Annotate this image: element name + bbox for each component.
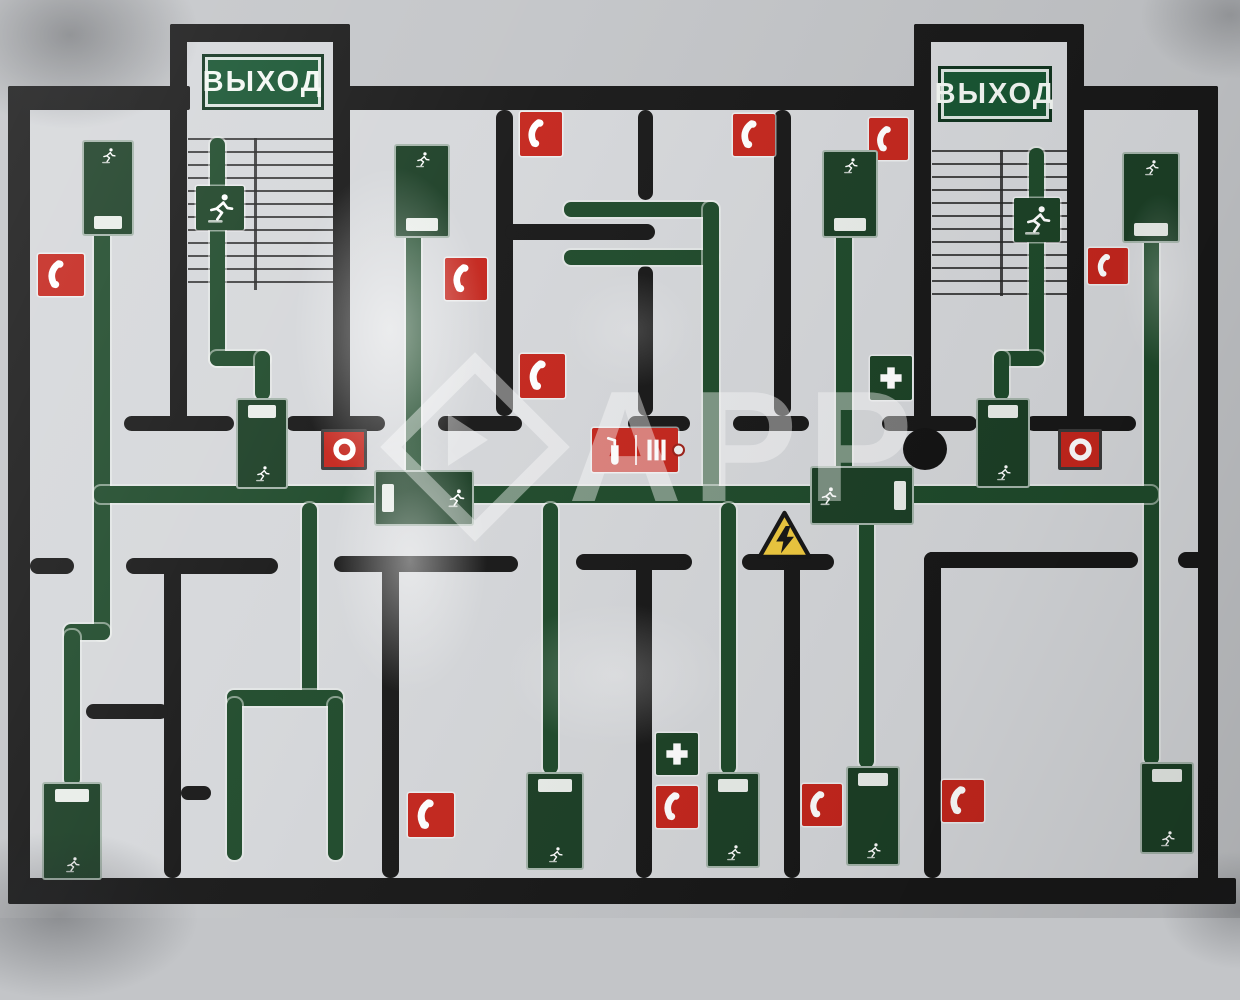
phone-icon xyxy=(658,788,696,826)
running-man-icon xyxy=(865,842,882,859)
route-indicator-sign xyxy=(822,150,878,238)
fire-phone-sign xyxy=(445,258,487,300)
wall-segment xyxy=(638,110,653,200)
direction-sign xyxy=(374,470,474,526)
running-man-icon xyxy=(64,856,81,873)
hose-reel-icon xyxy=(1066,435,1095,464)
wall-segment xyxy=(924,552,941,878)
wall-segment xyxy=(181,786,211,800)
sign-label-strip xyxy=(1152,769,1182,782)
sign-label-strip xyxy=(406,218,438,231)
evacuation-route-segment xyxy=(64,630,80,786)
wall-segment xyxy=(784,554,800,878)
sign-divider xyxy=(635,435,637,465)
sign-label-strip xyxy=(538,779,571,792)
evacuation-route-segment xyxy=(703,202,719,491)
evacuation-route-segment xyxy=(94,216,110,640)
phone-icon xyxy=(42,256,80,294)
route-indicator-sign xyxy=(236,398,288,489)
sign-label-strip xyxy=(894,481,906,510)
wall-segment xyxy=(8,878,1236,904)
evacuation-route-segment xyxy=(210,138,225,366)
sign-label-strip xyxy=(55,789,90,802)
phone-icon xyxy=(1093,251,1124,282)
running-man-icon xyxy=(547,846,564,863)
exit-sign: ВЫХОД xyxy=(202,54,324,110)
electrical-hazard-icon xyxy=(756,507,813,564)
wall-segment xyxy=(1067,24,1084,422)
first-aid-cross-icon xyxy=(662,739,692,769)
evacuation-route-segment xyxy=(302,503,317,701)
route-indicator-sign xyxy=(526,772,584,870)
route-indicator-sign xyxy=(976,398,1030,488)
sign-label-strip xyxy=(94,216,123,229)
sign-label-strip xyxy=(382,484,394,511)
wall-segment xyxy=(124,416,234,431)
running-man-icon xyxy=(1143,159,1160,176)
running-man-icon xyxy=(818,486,838,506)
wall-segment xyxy=(86,704,168,719)
column-marker xyxy=(903,428,947,470)
running-man-sign xyxy=(1014,198,1060,242)
phone-icon xyxy=(411,795,451,835)
hose-reel-icon xyxy=(330,435,359,464)
wall-segment xyxy=(8,86,30,902)
phone-icon xyxy=(447,260,485,298)
phone-icon xyxy=(522,115,560,153)
running-man-icon xyxy=(100,147,117,164)
sign-label-strip xyxy=(718,779,748,792)
running-man-icon xyxy=(1021,204,1053,236)
exit-sign-label: ВЫХОД xyxy=(935,78,1056,111)
evacuation-plan-photo: ВЫХОДВЫХОД АРР xyxy=(0,0,1240,918)
extinguisher-hose-cabinet-sign xyxy=(592,428,678,472)
wall-segment xyxy=(170,24,187,422)
running-man-icon xyxy=(725,844,742,861)
phone-icon xyxy=(522,356,562,396)
route-indicator-sign xyxy=(394,144,450,238)
direction-sign xyxy=(810,466,914,525)
route-indicator-sign xyxy=(1140,762,1194,854)
wall-segment xyxy=(733,416,809,431)
evacuation-route-segment xyxy=(255,351,270,400)
running-man-icon xyxy=(254,465,271,482)
evacuation-route-segment xyxy=(994,351,1009,400)
evacuation-route-segment xyxy=(564,202,718,217)
fire-extinguisher-icon xyxy=(598,433,631,467)
first-aid-sign xyxy=(656,733,698,775)
route-indicator-sign xyxy=(846,766,900,866)
evacuation-route-segment xyxy=(406,220,421,491)
fire-phone-sign xyxy=(1088,248,1128,284)
wall-segment xyxy=(496,110,513,416)
sign-label-strip xyxy=(834,218,866,231)
wall-segment xyxy=(576,554,692,570)
wall-segment xyxy=(636,554,652,878)
sign-label-strip xyxy=(248,405,277,418)
fire-phone-sign xyxy=(942,780,984,822)
wall-segment xyxy=(638,266,653,416)
wall-segment xyxy=(924,552,1138,568)
first-aid-sign xyxy=(870,356,912,400)
route-indicator-sign xyxy=(82,140,134,236)
sign-label-strip xyxy=(1134,223,1167,236)
fire-phone-sign xyxy=(520,354,565,398)
wall-segment xyxy=(1178,552,1218,568)
evacuation-route-segment xyxy=(328,698,343,860)
evacuation-route-segment xyxy=(543,503,558,774)
wall-segment xyxy=(505,224,655,240)
fire-phone-sign xyxy=(802,784,842,826)
sign-label-strip xyxy=(858,773,888,786)
first-aid-cross-icon xyxy=(876,363,906,393)
wall-segment xyxy=(126,558,278,574)
fire-phone-sign xyxy=(38,254,84,296)
fire-phone-sign xyxy=(733,114,775,156)
sign-label-strip xyxy=(988,405,1018,418)
wall-segment xyxy=(1070,86,1218,110)
evacuation-route-segment xyxy=(859,503,874,768)
route-indicator-sign xyxy=(42,782,102,880)
wall-segment xyxy=(164,558,181,878)
running-man-icon xyxy=(446,488,466,508)
stairs-divider xyxy=(1000,150,1003,296)
evacuation-route-segment xyxy=(721,503,736,774)
running-man-icon xyxy=(204,192,236,224)
phone-icon xyxy=(735,116,773,154)
wall-segment xyxy=(170,24,350,42)
running-man-icon xyxy=(995,464,1012,481)
running-man-icon xyxy=(842,157,859,174)
wall-segment xyxy=(1198,86,1218,904)
exit-sign-label: ВЫХОД xyxy=(203,66,324,99)
stairs-divider xyxy=(254,138,257,290)
wall-segment xyxy=(334,86,926,110)
running-man-sign xyxy=(196,186,244,230)
evacuation-route-segment xyxy=(227,690,343,706)
wall-segment xyxy=(333,24,350,422)
route-indicator-sign xyxy=(706,772,760,868)
wall-segment xyxy=(914,24,931,422)
hose-cabinet-icon xyxy=(641,434,672,466)
wall-segment xyxy=(774,110,791,416)
fire-phone-sign xyxy=(408,793,454,837)
cabinet-knob xyxy=(672,444,685,457)
phone-icon xyxy=(944,782,982,820)
evacuation-route-segment xyxy=(227,698,242,860)
electrical-hazard-sign xyxy=(753,511,815,560)
running-man-icon xyxy=(1159,830,1176,847)
exit-sign: ВЫХОД xyxy=(938,66,1052,122)
wall-segment xyxy=(438,416,522,431)
running-man-icon xyxy=(414,151,431,168)
wall-segment xyxy=(914,24,1084,42)
fire-phone-sign xyxy=(520,112,562,156)
phone-icon xyxy=(804,787,840,823)
evacuation-route-segment xyxy=(836,222,852,491)
wall-segment xyxy=(382,556,399,878)
fire-phone-sign xyxy=(656,786,698,828)
hose-reel-sign xyxy=(321,429,367,470)
evacuation-route-segment xyxy=(564,250,718,265)
floor-plan: ВЫХОДВЫХОД xyxy=(0,0,1240,918)
wall-segment xyxy=(30,558,74,574)
evacuation-route-segment xyxy=(1029,148,1044,366)
wall-segment xyxy=(334,556,518,572)
wall-segment xyxy=(8,86,190,110)
hose-reel-sign xyxy=(1058,429,1102,470)
route-indicator-sign xyxy=(1122,152,1180,243)
